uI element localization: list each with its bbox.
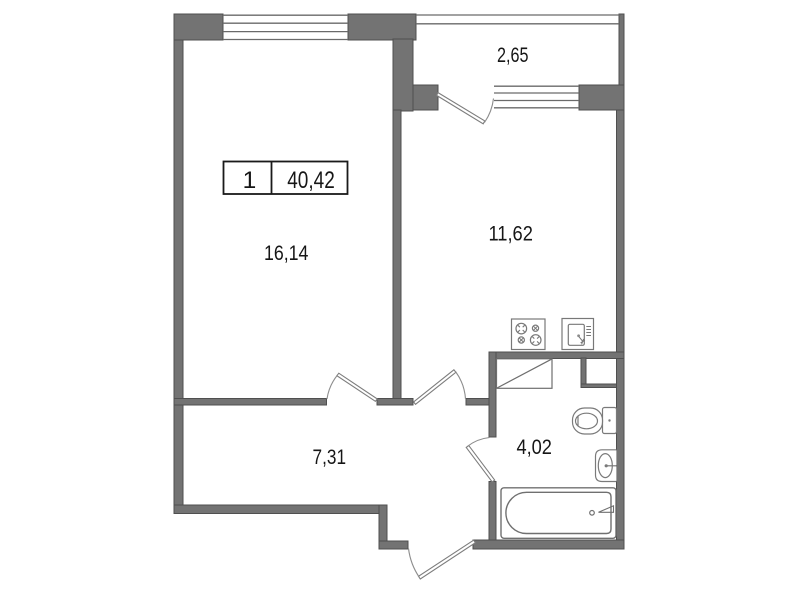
svg-text:2,65: 2,65 [497,43,529,67]
svg-text:16,14: 16,14 [264,241,309,265]
svg-text:11,62: 11,62 [488,221,533,245]
svg-text:7,31: 7,31 [313,445,347,469]
svg-text:40,42: 40,42 [287,167,335,194]
svg-text:1: 1 [243,167,257,194]
svg-text:4,02: 4,02 [516,435,552,459]
